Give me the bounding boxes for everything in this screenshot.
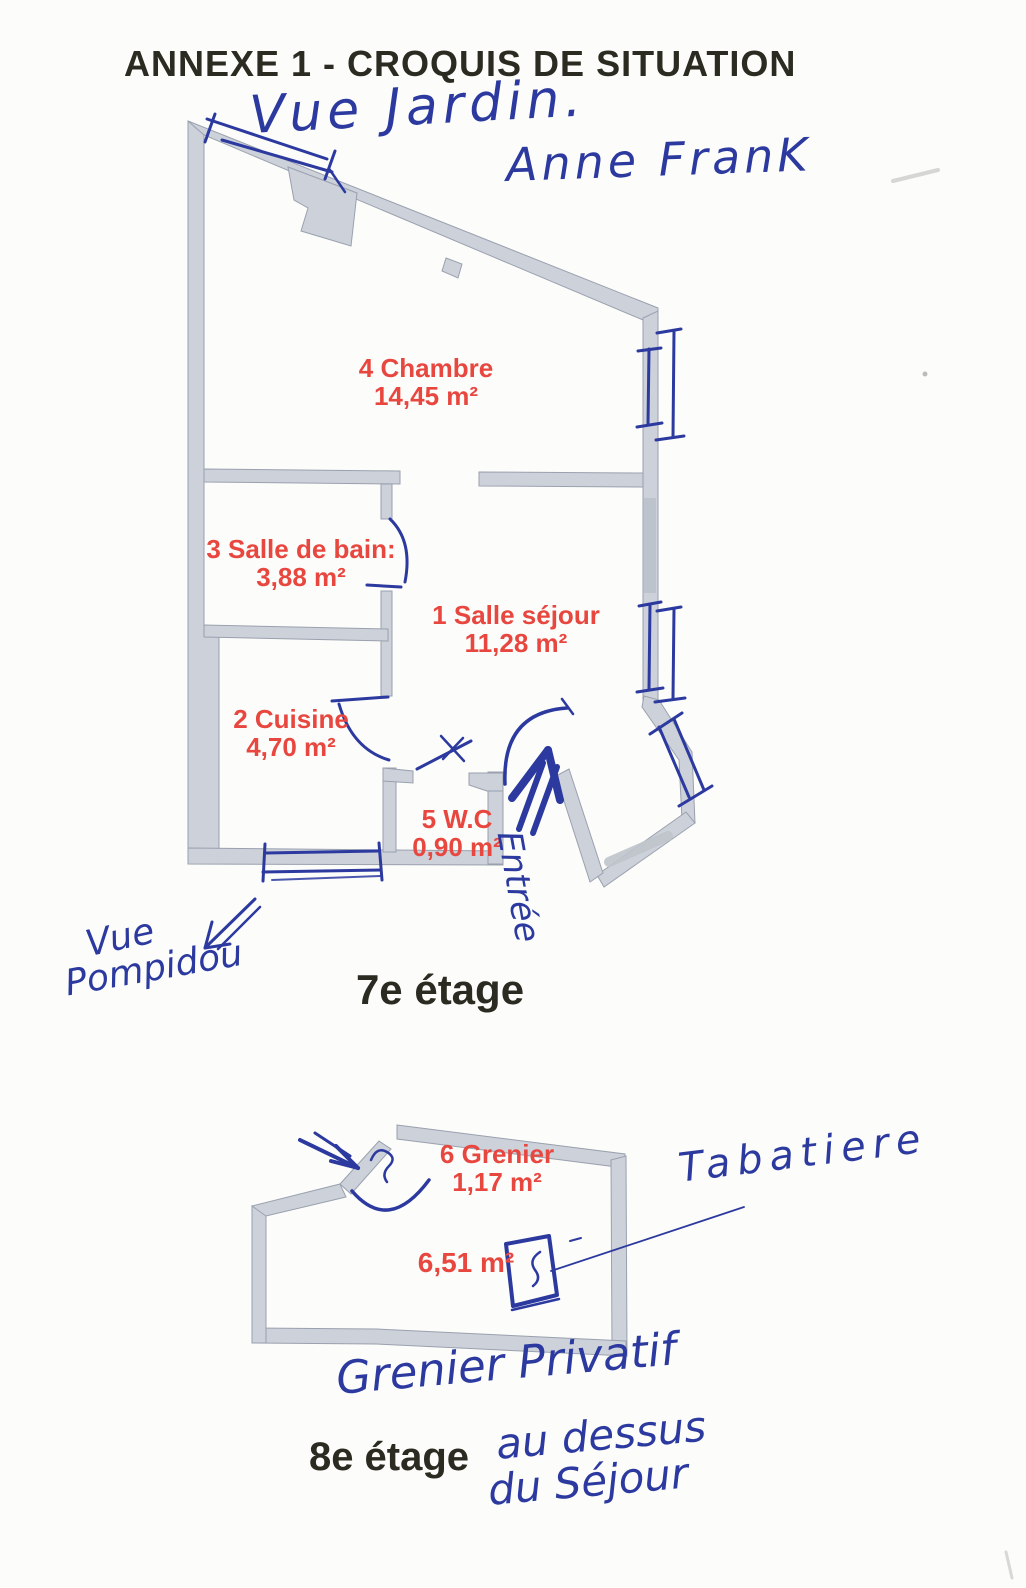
room-name: 4 Chambre — [359, 355, 493, 383]
wall-vestibule-inner — [556, 769, 603, 882]
wall-wc-top-right — [469, 773, 503, 791]
wall8-left — [252, 1206, 266, 1343]
wall-bath-vertical-bottom — [381, 591, 392, 696]
wall8-diagonal-steep — [340, 1141, 391, 1194]
wall-chambre-separator-right — [479, 472, 643, 487]
scanned-floorplan-page: ANNEXE 1 - CROQUIS DE SITUATION 4 Chambr… — [0, 0, 1026, 1588]
room-name: 2 Cuisine — [233, 706, 349, 734]
room-area: 1,17 m² — [440, 1169, 554, 1197]
room-area: 11,28 m² — [432, 630, 600, 658]
room-label-salle-sejour: 1 Salle séjour 11,28 m² — [432, 602, 600, 657]
entrance-arrow — [512, 750, 560, 833]
floor-label-8e: 8e étage — [309, 1435, 469, 1480]
room-label-cuisine: 2 Cuisine 4,70 m² — [233, 706, 349, 761]
handwriting-anne-frank: Anne FranK — [505, 127, 812, 192]
room-area: 4,70 m² — [233, 734, 349, 762]
room-label-wc: 5 W.C 0,90 m² — [412, 806, 502, 861]
wall-chambre-separator-left — [204, 469, 400, 484]
room-label-chambre: 4 Chambre 14,45 m² — [359, 355, 493, 410]
floor-label-7e: 7e étage — [356, 966, 524, 1014]
wall-wc-top-left — [383, 768, 413, 783]
wall-top-step — [442, 258, 462, 278]
room-area: 3,88 m² — [206, 564, 395, 592]
room-area: 14,45 m² — [359, 383, 493, 411]
wall8-diagonal-shallow — [252, 1184, 346, 1216]
wall-bath-vertical-top — [381, 484, 392, 519]
door-wc — [417, 736, 471, 769]
grenier-entry-arrow — [300, 1133, 358, 1168]
wall-bath-bottom — [204, 625, 388, 641]
room-name: 5 W.C — [412, 806, 502, 834]
room-area-651: 6,51 m² — [418, 1248, 515, 1278]
room-label-salle-de-bain: 3 Salle de bain: 3,88 m² — [206, 536, 395, 591]
wall-left — [188, 121, 219, 849]
room-name: 3 Salle de bain: — [206, 536, 395, 564]
room-name: 1 Salle séjour — [432, 602, 600, 630]
wall-right-jog — [642, 696, 695, 823]
room-name: 6 Grenier — [440, 1141, 554, 1169]
room-label-grenier: 6 Grenier 1,17 m² — [440, 1141, 554, 1196]
